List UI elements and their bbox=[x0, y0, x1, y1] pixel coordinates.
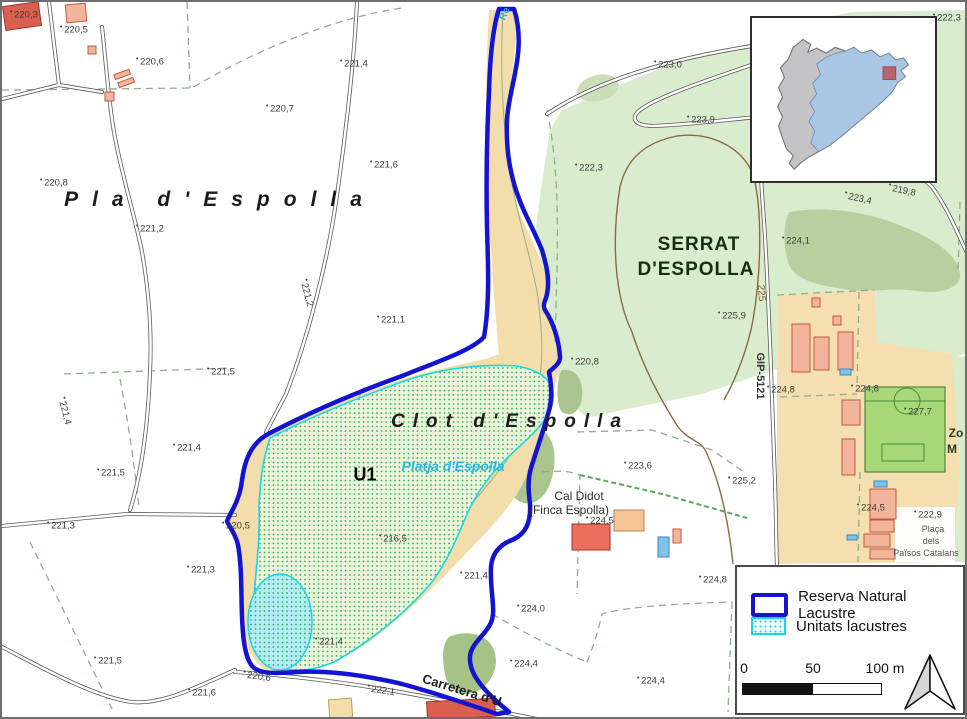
highlighted-basin-region bbox=[809, 47, 909, 151]
pool bbox=[874, 481, 887, 487]
north-arrow bbox=[902, 653, 960, 713]
inset-map bbox=[750, 16, 937, 183]
map-frame: 220,3220,5220,6220,7221,4221,6220,8221,2… bbox=[0, 0, 967, 719]
study-area-marker bbox=[883, 67, 896, 80]
sports-field bbox=[865, 387, 945, 472]
scale-tick-50: 50 bbox=[805, 660, 821, 676]
legend-label: Unitats lacustres bbox=[796, 618, 907, 635]
pool bbox=[847, 535, 857, 540]
legend-item-units: Unitats lacustres bbox=[751, 617, 907, 635]
scale-tick-0: 0 bbox=[740, 660, 748, 676]
lacustrine-units-swatch bbox=[751, 617, 786, 635]
water-body bbox=[248, 574, 312, 670]
reserve-boundary-swatch bbox=[751, 593, 788, 617]
scale-bar bbox=[742, 683, 882, 695]
scale-tick-100: 100 m bbox=[866, 660, 905, 676]
pool bbox=[658, 537, 669, 557]
pool bbox=[840, 369, 851, 375]
legend: Reserva Natural Lacustre Unitats lacustr… bbox=[735, 565, 965, 715]
